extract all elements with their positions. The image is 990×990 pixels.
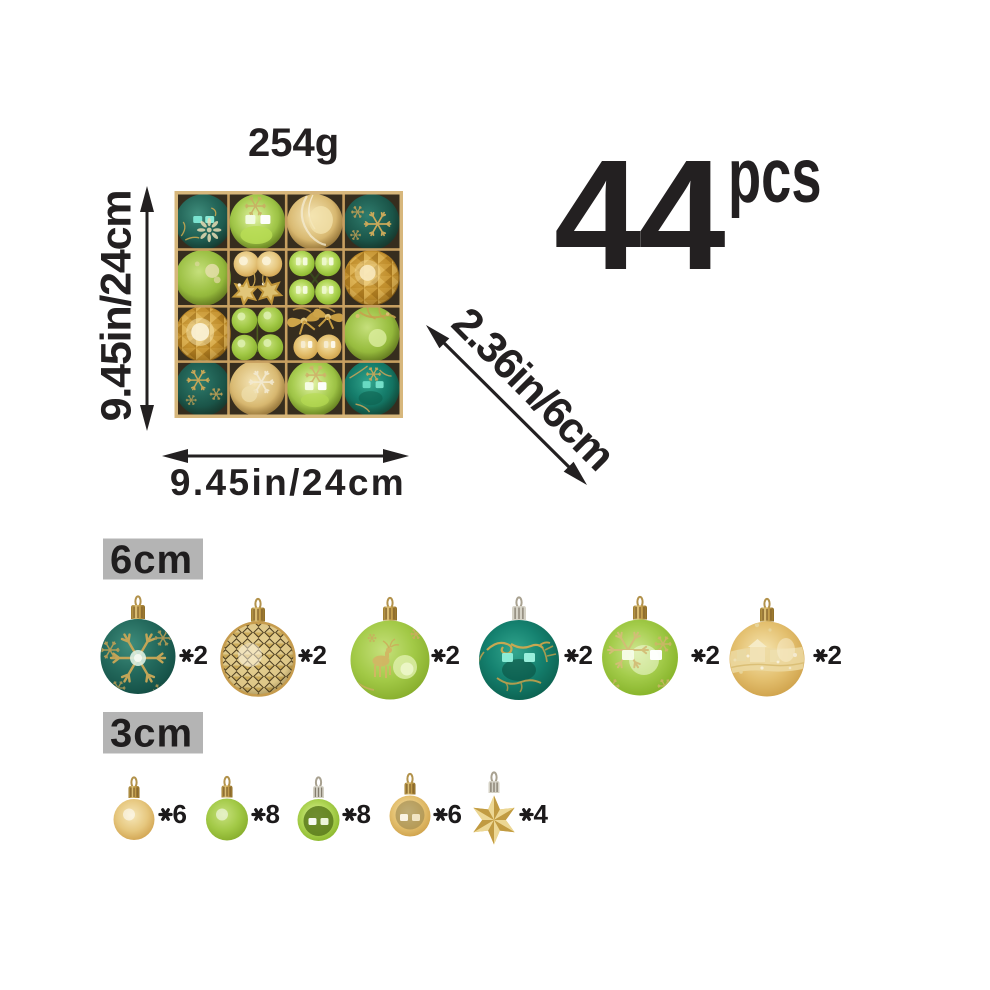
svg-text:6: 6	[173, 799, 187, 829]
svg-text:254g: 254g	[248, 121, 339, 165]
svg-text:2: 2	[706, 640, 720, 670]
svg-text:9.45in/24cm: 9.45in/24cm	[170, 462, 406, 503]
svg-text:8: 8	[266, 799, 280, 829]
svg-text:3cm: 3cm	[110, 712, 193, 756]
svg-text:pcs: pcs	[728, 134, 822, 220]
svg-text:4: 4	[534, 799, 549, 829]
svg-text:2: 2	[446, 640, 460, 670]
svg-text:6cm: 6cm	[110, 538, 193, 582]
svg-text:2: 2	[313, 640, 327, 670]
svg-text:2: 2	[194, 640, 208, 670]
svg-text:9.45in/24cm: 9.45in/24cm	[93, 191, 141, 422]
svg-text:44: 44	[554, 128, 725, 303]
svg-text:2: 2	[828, 640, 842, 670]
svg-text:8: 8	[357, 799, 371, 829]
svg-text:6: 6	[448, 799, 462, 829]
svg-text:2: 2	[579, 640, 593, 670]
